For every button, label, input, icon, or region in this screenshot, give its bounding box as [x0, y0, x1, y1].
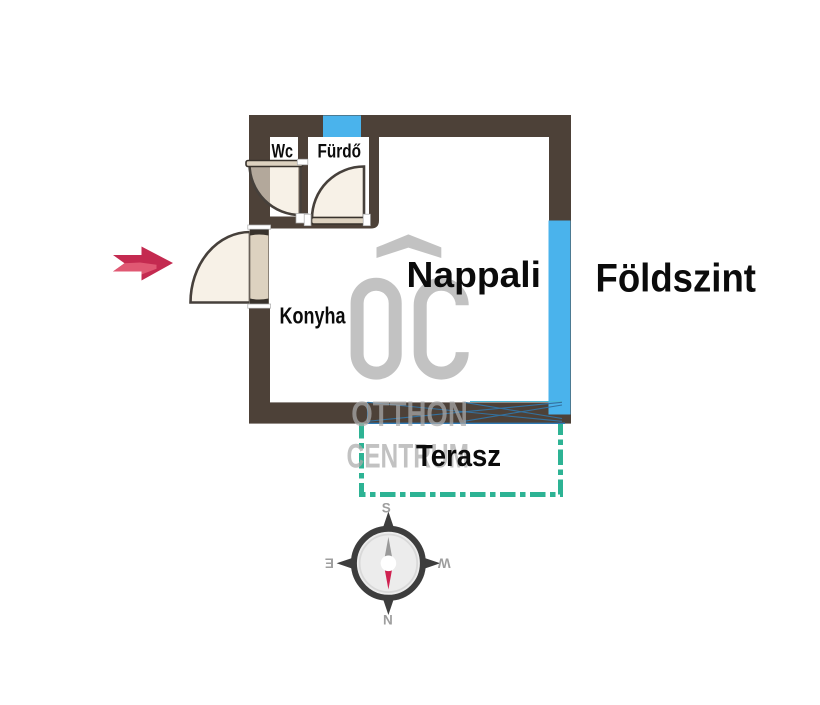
svg-text:E: E	[325, 556, 334, 571]
svg-text:Földszint: Földszint	[596, 257, 757, 301]
svg-text:W: W	[438, 556, 451, 571]
svg-text:OTTHON: OTTHON	[351, 395, 468, 434]
svg-text:Konyha: Konyha	[280, 303, 347, 329]
svg-text:S: S	[382, 501, 391, 516]
svg-text:N: N	[383, 613, 393, 628]
svg-text:Fürdő: Fürdő	[318, 142, 362, 163]
svg-text:Wc: Wc	[272, 142, 294, 163]
svg-text:Terasz: Terasz	[416, 438, 501, 473]
svg-text:Nappali: Nappali	[407, 254, 542, 295]
